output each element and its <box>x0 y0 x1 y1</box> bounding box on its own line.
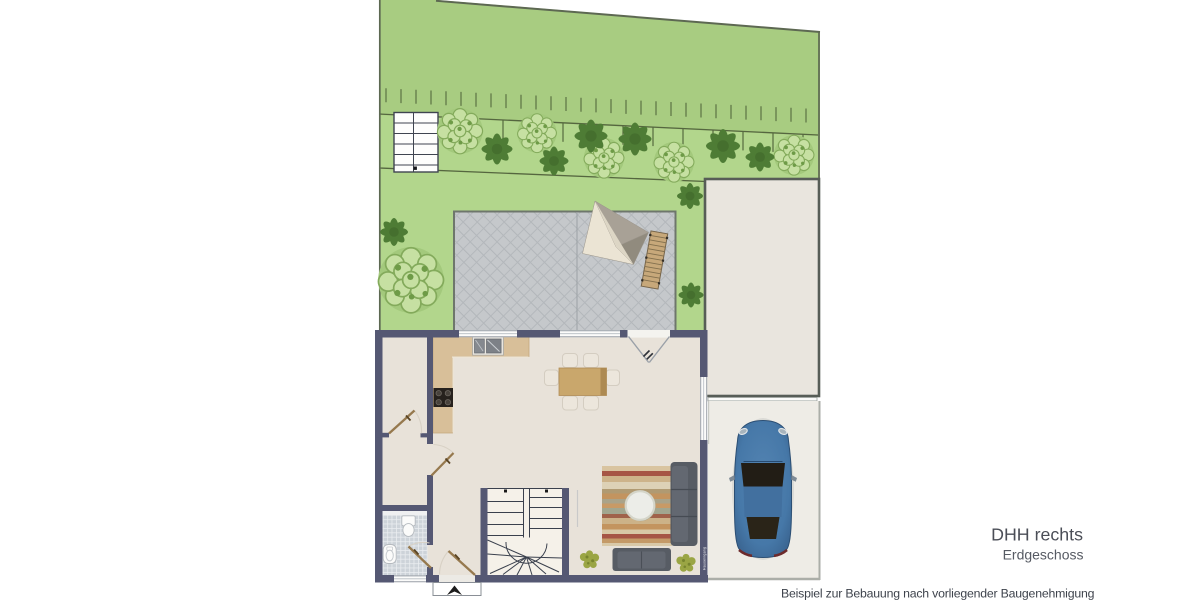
svg-text:Hauseingang: Hauseingang <box>702 547 706 570</box>
svg-text:DHH rechts: DHH rechts <box>991 525 1083 545</box>
svg-text:Beispiel zur Bebauung nach vor: Beispiel zur Bebauung nach vorliegender … <box>781 587 1095 600</box>
svg-text:Erdgeschoss: Erdgeschoss <box>1003 547 1084 563</box>
